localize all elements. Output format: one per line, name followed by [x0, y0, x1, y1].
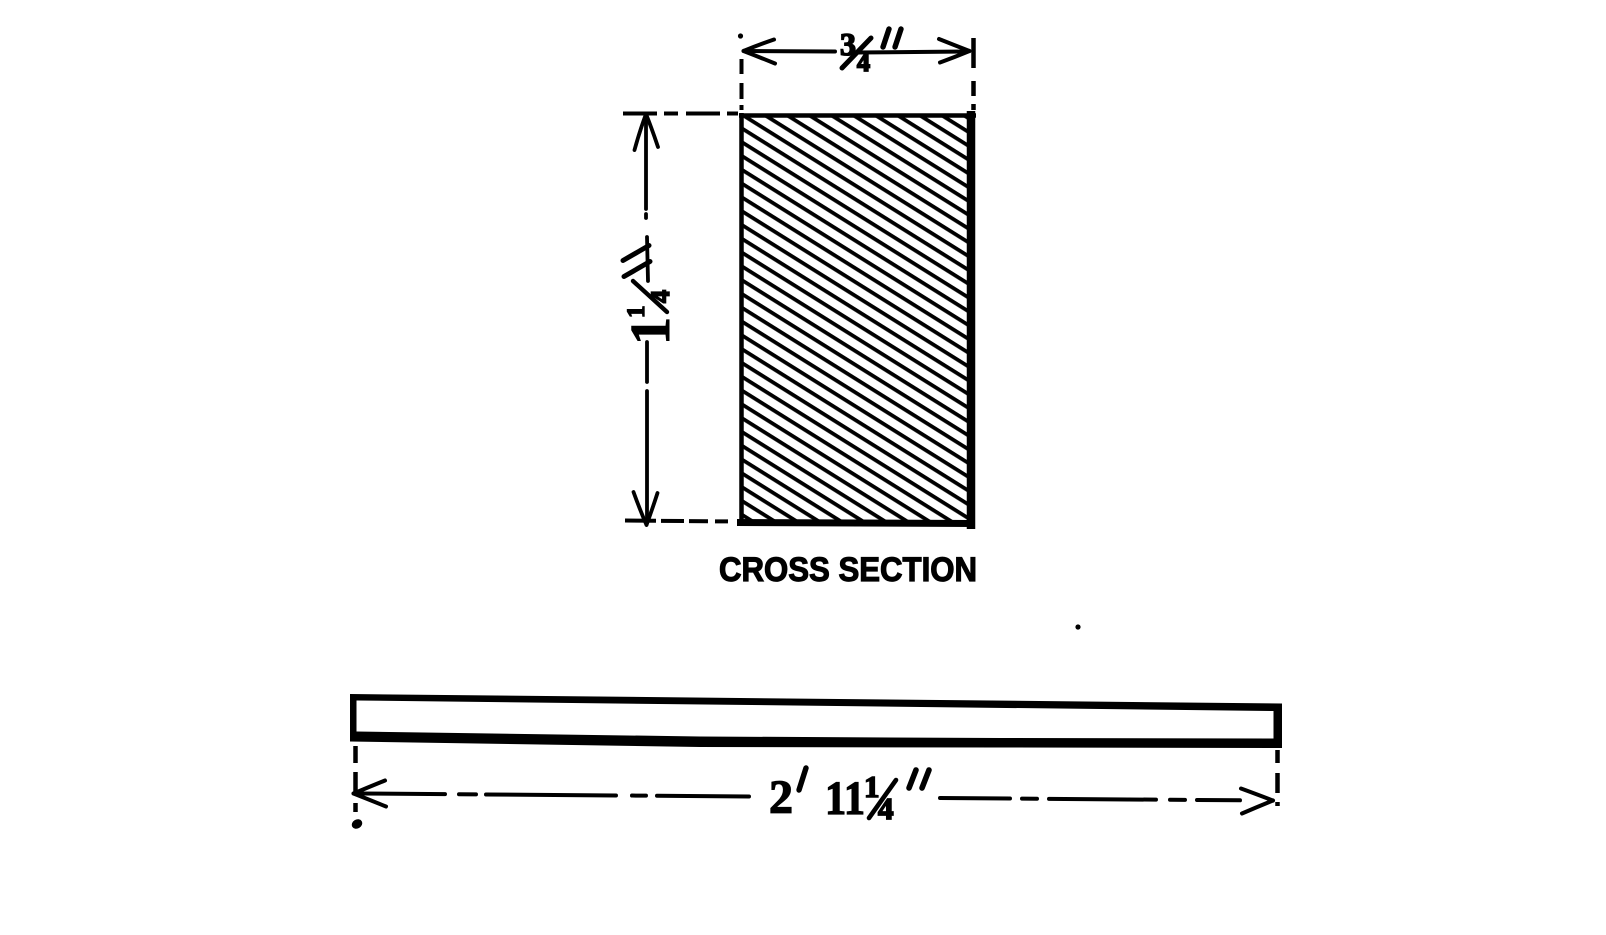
- svg-text:4: 4: [878, 791, 894, 826]
- svg-text:1: 1: [620, 317, 682, 345]
- svg-text:CROSS SECTION: CROSS SECTION: [719, 551, 977, 589]
- svg-text:4: 4: [857, 48, 870, 77]
- svg-text:11: 11: [825, 772, 865, 825]
- svg-text:1: 1: [623, 306, 650, 319]
- svg-text:2: 2: [769, 771, 793, 824]
- svg-text:4: 4: [646, 290, 675, 303]
